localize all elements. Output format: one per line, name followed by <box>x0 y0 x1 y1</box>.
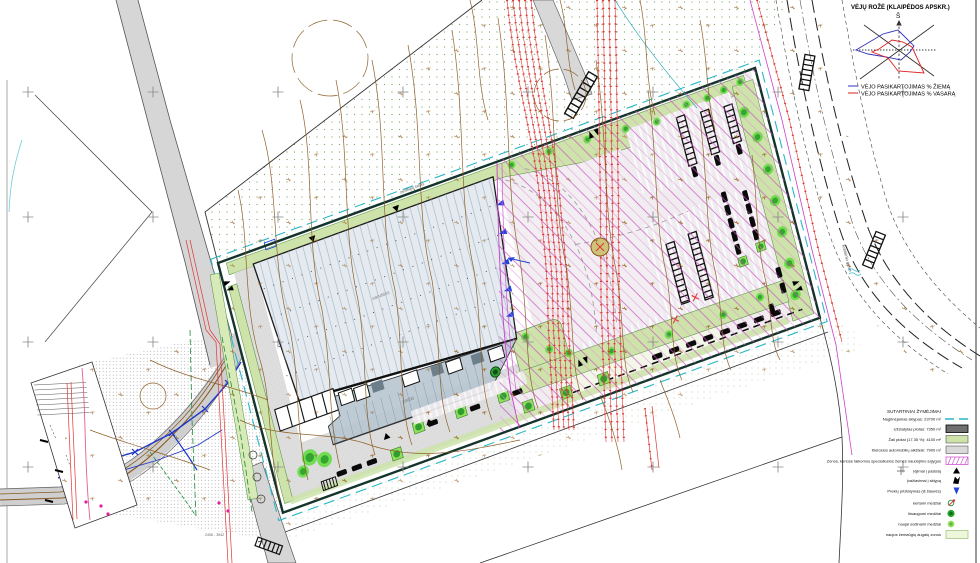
svg-text:VĖJO PASIKARTOJIMAS % VASARĄ: VĖJO PASIKARTOJIMAS % VASARĄ <box>861 91 956 98</box>
svg-text:Prekių pristatymas (iš šiaurės: Prekių pristatymas (iš šiaurės) <box>887 489 941 494</box>
svg-text:naujai sodinami medžiai: naujai sodinami medžiai <box>898 522 941 527</box>
svg-text:Nagrinėjamas sklypas: 23700 m²: Nagrinėjamas sklypas: 23700 m² <box>883 417 942 422</box>
svg-text:naujos žemaūgių augalų zonos: naujos žemaūgių augalų zonos <box>886 532 941 537</box>
svg-text:Š: Š <box>896 11 901 20</box>
svg-text:Kietosios automobilių aikštelė: Kietosios automobilių aikštelė: 7900 m² <box>872 448 942 453</box>
svg-text:Įvažiavimai į sklypą: Įvažiavimai į sklypą <box>907 478 942 483</box>
svg-text:VĖJO PASIKARTOJIMAS % ŽIEMĄ: VĖJO PASIKARTOJIMAS % ŽIEMĄ <box>861 83 950 91</box>
svg-text:kertami medžiai: kertami medžiai <box>913 501 941 506</box>
svg-text:Žali plotai (17.35 %): 4100 m²: Žali plotai (17.35 %): 4100 m² <box>889 437 942 442</box>
svg-text:2406 - 3942: 2406 - 3942 <box>205 533 224 537</box>
svg-text:VĖJŲ ROŽĖ (KLAIPĖDOS APSKR.): VĖJŲ ROŽĖ (KLAIPĖDOS APSKR.) <box>851 3 950 11</box>
svg-text:išsaugomi medžiai: išsaugomi medžiai <box>908 511 941 516</box>
svg-text:SUTARTINIAI ŽYMĖJIMAI: SUTARTINIAI ŽYMĖJIMAI <box>887 407 941 414</box>
svg-text:Zonos, kuriose taikomos specia: Zonos, kuriose taikomos specialiosios že… <box>827 459 941 464</box>
svg-text:Užstatytas plotas: 7350 m²: Užstatytas plotas: 7350 m² <box>894 427 942 432</box>
svg-text:Įėjimai į pastatą: Įėjimai į pastatą <box>913 469 942 474</box>
